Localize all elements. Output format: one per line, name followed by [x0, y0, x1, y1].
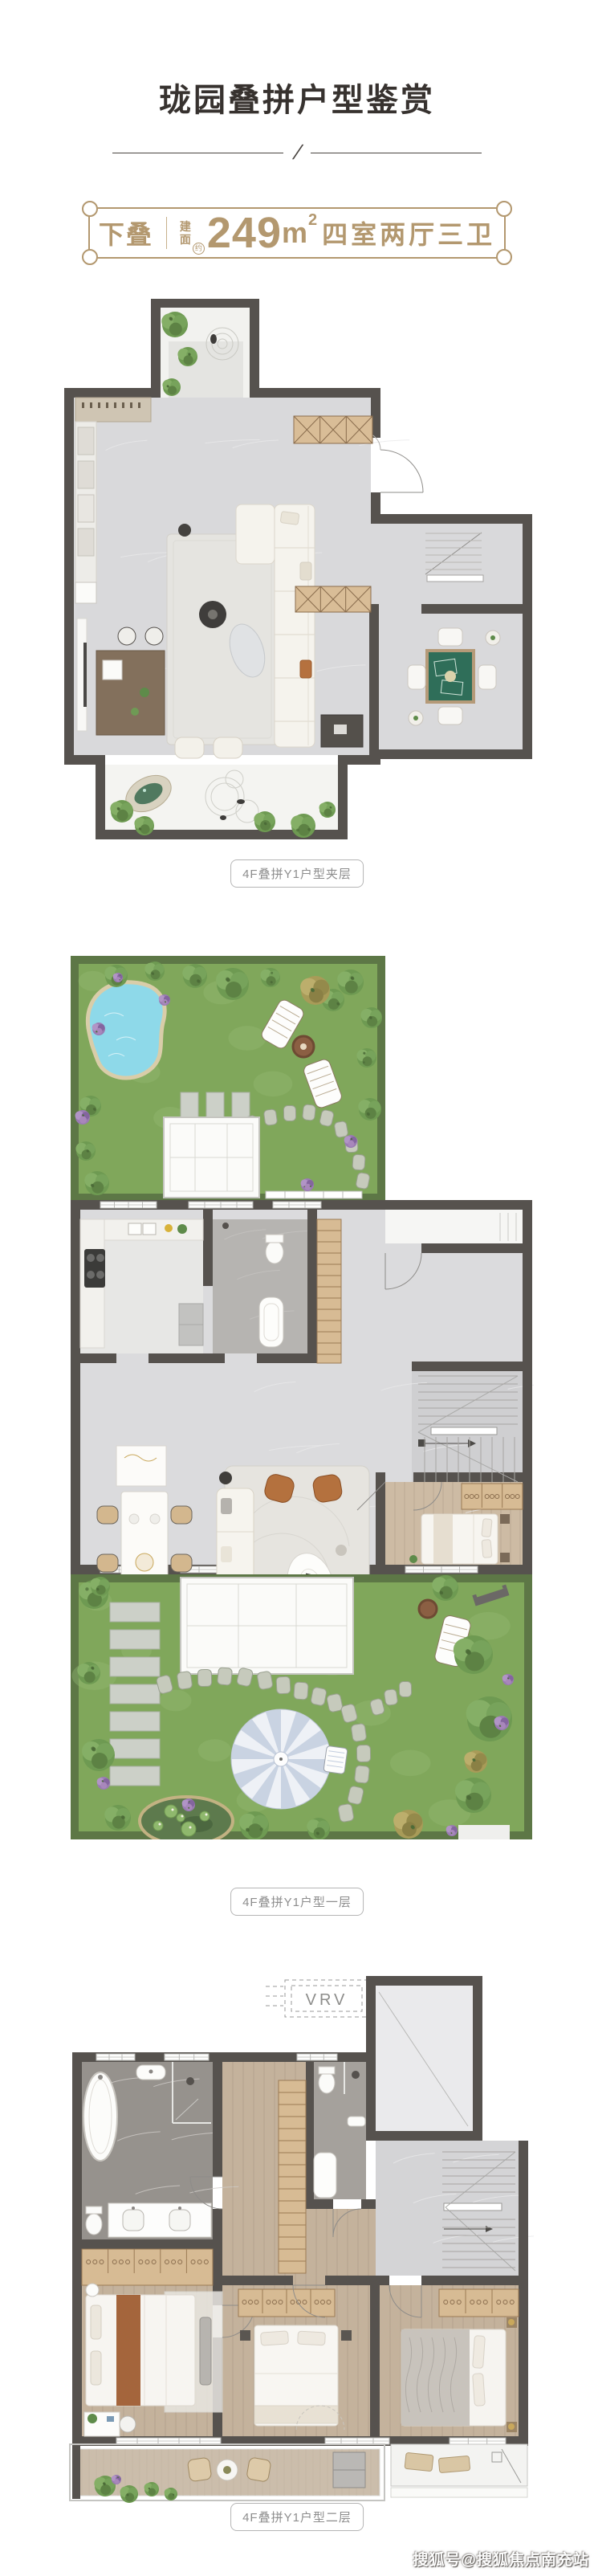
- toilet: [266, 1241, 283, 1264]
- vrv-label: VRV: [306, 1991, 348, 2009]
- sink: [143, 1223, 156, 1235]
- badge-approx-circle: 约: [193, 243, 205, 255]
- window: [273, 1202, 321, 1208]
- window: [116, 2438, 221, 2444]
- wardrobe: [82, 2249, 213, 2285]
- window: [165, 2054, 209, 2060]
- lamp: [508, 2423, 515, 2430]
- lamp: [508, 2319, 515, 2325]
- pillow: [91, 2305, 101, 2339]
- plan-caption-floor2: 4F叠拼Y1户型二层: [230, 2503, 364, 2531]
- badge-area-unit-exponent: 2: [308, 211, 317, 230]
- plan-caption-mezzanine: 4F叠拼Y1户型夹层: [230, 859, 364, 888]
- skylight-over-living: [164, 1117, 259, 1198]
- skylight-over-mezzanine: [181, 1578, 353, 1674]
- stool: [336, 1545, 347, 1556]
- garden-glass-door: [266, 1191, 362, 1198]
- bench: [200, 2317, 211, 2385]
- stepping-stone: [311, 1687, 328, 1706]
- shower-head: [186, 2077, 194, 2085]
- armchair: [214, 737, 242, 758]
- p3-terrace: [70, 2444, 384, 2503]
- floor-lamp: [219, 1472, 232, 1484]
- pillow: [91, 2351, 101, 2385]
- chair: [438, 707, 462, 725]
- chair: [438, 628, 462, 646]
- mat: [405, 2452, 433, 2471]
- divider-line-right: [311, 153, 482, 153]
- window: [325, 2438, 389, 2444]
- nightstand: [500, 1553, 510, 1562]
- floor-lamp: [178, 524, 191, 537]
- armchair: [175, 737, 204, 758]
- p2-back-garden: [71, 1574, 532, 1839]
- pillow: [482, 1519, 492, 1537]
- stepping-stone: [263, 1109, 277, 1126]
- stepping-stone: [352, 1154, 365, 1170]
- badge-corner-icon: [82, 249, 98, 265]
- p3-small-balcony: [391, 2444, 527, 2497]
- plant-pot: [87, 2414, 97, 2423]
- nightstand: [500, 1514, 510, 1524]
- bed-throw: [116, 2295, 140, 2406]
- green-bush: [307, 1818, 330, 1839]
- wardrobe: [462, 1484, 523, 1509]
- stepping-stone: [384, 1689, 397, 1706]
- stepping-stone: [334, 1121, 348, 1137]
- shower-head: [352, 2071, 360, 2079]
- bathtub: [314, 2153, 336, 2198]
- sink: [123, 2210, 144, 2231]
- bed-throw: [433, 1514, 453, 1564]
- p3-master-wardrobe: [82, 2249, 213, 2285]
- stepping-stone: [303, 1104, 316, 1121]
- wardrobe: [439, 2289, 519, 2317]
- green-bush: [165, 2488, 177, 2500]
- stepping-stone: [356, 1745, 370, 1762]
- window: [96, 2054, 135, 2060]
- plan-caption-text: 4F叠拼Y1户型二层: [242, 2511, 352, 2525]
- window: [297, 2054, 337, 2060]
- stepping-stone: [338, 1803, 354, 1823]
- paver: [110, 1602, 160, 1622]
- plan-caption-text: 4F叠拼Y1户型夹层: [242, 868, 352, 881]
- window: [405, 1566, 478, 1573]
- stepping-stone: [399, 1681, 411, 1696]
- paver: [110, 1739, 160, 1758]
- sofa-chaise: [236, 504, 275, 564]
- page-title: 珑园叠拼户型鉴赏: [0, 74, 594, 120]
- bed-blanket: [254, 2406, 338, 2423]
- mat: [438, 2456, 470, 2472]
- sink: [103, 660, 122, 680]
- stepping-stone: [283, 1105, 295, 1121]
- paver: [110, 1684, 160, 1704]
- pillow: [300, 660, 311, 678]
- sink: [169, 2210, 190, 2231]
- chair: [171, 1506, 192, 1524]
- chair: [478, 665, 496, 689]
- plan-caption-floor1: 4F叠拼Y1户型一层: [230, 1888, 364, 1916]
- nightstand: [86, 2284, 99, 2296]
- stepping-stone: [177, 1671, 193, 1689]
- hedge-gap: [458, 1825, 510, 1839]
- unit-type-badge: 下叠 建面 约 249 m 2 四室两厅三卫: [88, 207, 506, 259]
- badge-corner-icon: [496, 249, 512, 265]
- bathtub: [259, 1297, 283, 1347]
- page: 珑园叠拼户型鉴赏 / 下叠 建面 约 249 m 2 四室两厅三卫: [0, 0, 594, 2576]
- window: [100, 1202, 157, 1208]
- pillow: [300, 562, 311, 580]
- divider-line-left: [112, 153, 283, 153]
- toilet: [86, 2214, 102, 2235]
- sink: [128, 1223, 141, 1235]
- desk-chair: [120, 2416, 136, 2432]
- parasol-canopy: [231, 1709, 331, 1809]
- pillow: [298, 2331, 326, 2345]
- chair: [408, 665, 425, 689]
- floorplan-floor2-drawing: VRV: [68, 1972, 534, 2534]
- parasol: [231, 1709, 331, 1809]
- title-divider: /: [112, 143, 482, 162]
- rattan-chair: [246, 2457, 271, 2482]
- badge-corner-icon: [496, 201, 512, 217]
- divider-slash: /: [292, 143, 302, 163]
- stepping-stone: [351, 1723, 367, 1741]
- floorplan-mezzanine: [64, 297, 534, 843]
- stair-rail: [427, 575, 483, 582]
- bar-stool: [145, 627, 163, 645]
- stepping-stone: [276, 1676, 291, 1694]
- floorplan-floor1-drawing: [68, 952, 534, 1839]
- pillow: [482, 1540, 492, 1558]
- toilet: [319, 2072, 335, 2093]
- sideboard: [116, 1446, 166, 1486]
- pillow: [473, 2374, 486, 2407]
- watermark: 搜狐号@搜狐焦点南充站: [413, 2548, 589, 2570]
- stepping-stone: [356, 1172, 370, 1190]
- plant-pot: [177, 1224, 187, 1234]
- paver: [110, 1712, 160, 1731]
- pillow: [260, 2331, 288, 2345]
- p3-shelf-column: [279, 2080, 306, 2273]
- hatched-cabinet: [294, 416, 372, 443]
- stepping-stone: [217, 1668, 232, 1686]
- chair: [97, 1506, 118, 1524]
- green-bush: [239, 1811, 269, 1839]
- nightstand: [341, 2330, 352, 2341]
- basin: [348, 2117, 365, 2126]
- rug: [167, 534, 278, 745]
- badge-corner-icon: [82, 201, 98, 217]
- badge-area-prefix-bottom: 面: [180, 233, 191, 246]
- pillow: [221, 1546, 232, 1562]
- hatched-cabinet: [295, 586, 371, 612]
- bathtub: [83, 2072, 117, 2161]
- bed-duvet: [401, 2329, 470, 2426]
- window: [450, 2438, 506, 2444]
- paver: [110, 1630, 160, 1649]
- bar-stool: [118, 627, 136, 645]
- side-table: [323, 1745, 348, 1774]
- badge-rooms-label: 四室两厅三卫: [322, 214, 495, 251]
- stepping-stone: [257, 1671, 273, 1690]
- badge-area-unit: m: [282, 216, 307, 250]
- window: [189, 1202, 253, 1208]
- armchair: [311, 1473, 343, 1503]
- badge-separator: [166, 217, 167, 249]
- balcony-step: [391, 2488, 527, 2497]
- floorplan-floor2: VRV: [68, 1972, 534, 2534]
- p2-shelf-column: [317, 1219, 341, 1363]
- paver: [110, 1657, 160, 1676]
- pillow: [221, 1498, 232, 1514]
- stepping-stone: [294, 1682, 308, 1700]
- p2-front-garden: [71, 956, 385, 1200]
- p3-bedroom2: [238, 2285, 352, 2430]
- rattan-chair: [187, 2457, 211, 2481]
- badge-area-prefix: 建面: [180, 220, 191, 246]
- pillow: [473, 2336, 486, 2369]
- floorplan-floor1: [68, 952, 534, 1839]
- tv: [83, 643, 87, 707]
- floorplan-mezzanine-drawing: [64, 297, 534, 843]
- stair-rail: [444, 2203, 502, 2211]
- badge-type-label: 下叠: [99, 214, 153, 251]
- plant-pot: [409, 1555, 417, 1563]
- plan-caption-text: 4F叠拼Y1户型一层: [242, 1896, 352, 1909]
- chair: [97, 1554, 118, 1572]
- paver: [110, 1766, 160, 1786]
- stepping-stone: [354, 1766, 369, 1784]
- pillow: [280, 512, 299, 525]
- badge-area-prefix-top: 建: [180, 220, 191, 233]
- stair-rail: [431, 1427, 497, 1435]
- shower-head: [222, 1223, 229, 1229]
- nightstand: [240, 2330, 250, 2341]
- badge-area-value: 249: [207, 211, 282, 255]
- round-table: [419, 1600, 437, 1618]
- chair: [171, 1554, 192, 1572]
- stepping-stone: [197, 1669, 211, 1686]
